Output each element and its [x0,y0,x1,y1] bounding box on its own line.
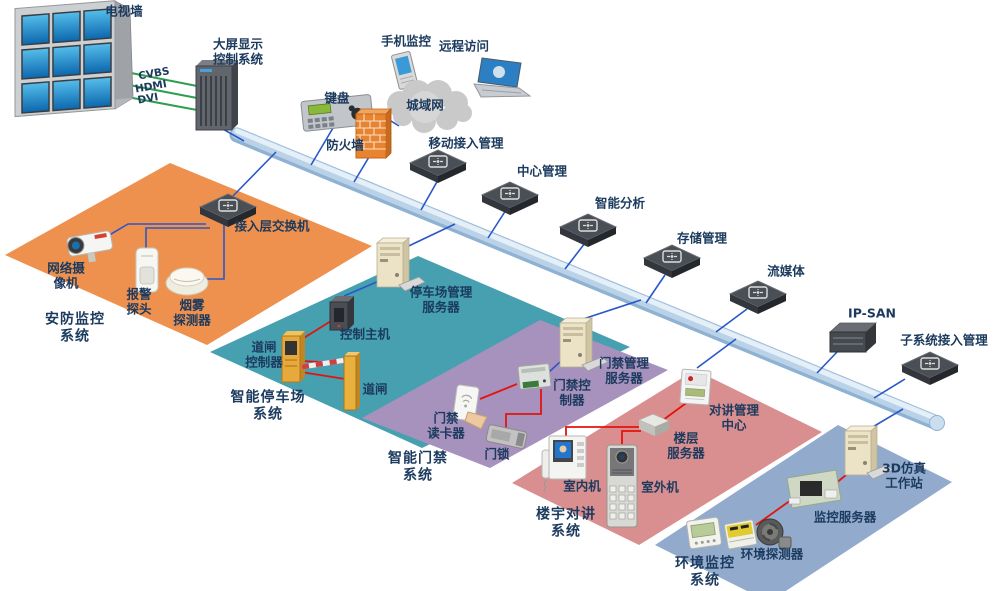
control-host-device [330,296,354,330]
label-outdoor-unit: 室外机 [641,481,679,496]
storage-switch [644,245,700,278]
label-parking-server: 停车场管理 服务器 [410,285,473,315]
label-keyboard: 键盘 [324,92,349,107]
access-controller-device [518,363,551,389]
label-network-camera: 网络摄 像机 [47,261,85,291]
display-control-rack [196,60,238,130]
link-analysis-pipe [565,243,585,269]
smoke-detector-device [166,268,208,295]
link-accessswitch-pipe [233,152,276,196]
label-big-screen: 大屏显示 控制系统 [213,37,263,67]
link-mobileaccess-pipe [421,180,438,210]
label-door-lock: 门锁 [484,448,509,463]
outdoor-unit-device [607,445,637,527]
label-subsystem-access: 子系统接入管理 [900,334,988,349]
label-storage-mgmt: 存储管理 [677,232,727,247]
label-smoke-detector: 烟雾 探测器 [173,298,211,328]
label-access-system: 智能门禁 系统 [388,450,448,483]
label-mobile-access: 移动接入管理 [428,137,503,152]
label-access-server: 门禁管理 服务器 [599,356,649,386]
label-building-intercom: 楼宇对讲 系统 [536,506,596,539]
center-mgmt-switch [482,182,538,215]
link-ipsan-pipe [817,351,838,373]
link-accessserver-pipe [580,300,641,320]
laptop-device [474,58,530,97]
label-parking-system: 智能停车场 系统 [231,389,306,422]
link-centermgmt-pipe [488,210,506,238]
label-indoor-unit: 室内机 [563,480,601,495]
label-monitor-server: 监控服务器 [814,511,877,526]
label-intercom-center: 对讲管理 中心 [709,403,759,433]
ipsan-device [830,323,876,352]
label-man: 城域网 [406,99,444,114]
env-module-device [724,520,757,550]
label-control-host: 控制主机 [340,328,390,343]
label-phone-monitor: 手机监控 [381,35,431,50]
label-access-controller: 门禁控 制器 [553,378,591,408]
topology-diagram: 电视墙 CVBS HDMI DVI 大屏显示 控制系统 手机监控 远程访问 键盘… [0,0,1000,591]
label-env-detector: 环境探测器 [741,548,804,563]
label-gate-controller: 道闸 控制器 [245,340,283,370]
label-security-system: 安防监控 系统 [45,311,105,344]
streaming-switch [730,281,786,314]
link-subsys-pipe [874,379,905,398]
link-stream-pipe [716,309,747,332]
analysis-switch [560,214,616,247]
label-env-system: 环境监控 系统 [675,555,735,588]
label-firewall: 防火墙 [326,139,364,154]
label-access-switch: 接入层交换机 [234,220,309,235]
pipe-end-cap [930,416,945,431]
label-center-mgmt: 中心管理 [517,165,567,180]
label-remote-access: 远程访问 [439,40,489,55]
mobile-access-switch [410,150,466,183]
label-workstation-3d: 3D仿真 工作站 [882,461,926,491]
link-intercom-pipe [697,339,736,368]
intercom-center-device [680,369,711,405]
label-ipsan: IP-SAN [848,307,896,322]
label-tv-wall: 电视墙 [105,5,143,20]
label-card-reader: 门禁 读卡器 [427,411,465,441]
label-intelligent-analysis: 智能分析 [595,197,645,212]
subsystem-access-switch [902,352,958,385]
label-gate: 道闸 [362,383,387,398]
label-alarm-probe: 报警 探头 [126,287,151,317]
label-floor-server: 楼层 服务器 [667,431,705,461]
label-streaming: 流媒体 [767,265,805,280]
env-lcd-device [686,517,722,549]
link-storage-pipe [646,275,665,303]
gate-controller-device [282,331,305,382]
